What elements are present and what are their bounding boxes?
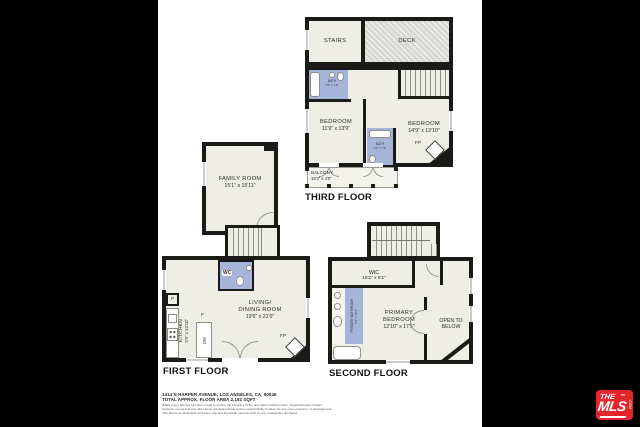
balcony-post xyxy=(371,184,375,188)
wall xyxy=(393,128,396,167)
window xyxy=(306,298,310,318)
bath2-label: BATH 4'0" x 7'5" xyxy=(368,143,392,150)
stairs xyxy=(372,226,424,256)
fireplace-label: FP xyxy=(415,141,422,146)
mls-logo-mls: MLS xyxy=(597,399,627,413)
balcony-post xyxy=(327,184,331,188)
window xyxy=(186,358,208,362)
family-room-label: FAMILY ROOM 15'1" x 15'11" xyxy=(205,176,275,189)
stair-rail xyxy=(372,240,430,241)
window xyxy=(305,30,309,50)
living-dining-label: LIVING/ DINING ROOM 19'6" x 21'0" xyxy=(224,300,296,320)
third-floor-plan: STAIRS DECK BATH 7'5" x 4'5" BEDROOM 11'… xyxy=(305,17,455,203)
family-room-plan: FAMILY ROOM 15'1" x 15'11" xyxy=(202,142,284,264)
open-to-below-label: OPEN TO BELOW xyxy=(430,318,472,330)
window xyxy=(469,278,473,294)
dishwasher-label: DW xyxy=(196,326,212,354)
floor-plan-screenshot: STAIRS DECK BATH 7'5" x 4'5" BEDROOM 11'… xyxy=(0,0,640,427)
door-opening xyxy=(424,310,427,334)
mls-logo-com: .COM xyxy=(628,399,632,409)
footer-text-block: 1414 N HARPER AVENUE, LOS ANGELES, CA, 9… xyxy=(162,392,357,416)
window xyxy=(469,306,473,322)
toilet-icon xyxy=(369,155,376,163)
stairs-to-first-floor xyxy=(229,228,260,257)
bathtub-icon xyxy=(369,130,391,138)
third-floor-title: THIRD FLOOR xyxy=(305,192,372,203)
window xyxy=(162,270,166,290)
balcony-post xyxy=(305,184,309,188)
mls-logo: THE MLS TM .COM xyxy=(596,390,633,420)
interior-stairs xyxy=(401,70,449,96)
kitchen-sink-icon xyxy=(168,314,177,323)
mls-logo-underline xyxy=(600,416,627,418)
deck-label: DECK xyxy=(375,38,439,45)
balcony-post xyxy=(394,184,398,188)
wic-label: WIC 16'2" x 5'1" xyxy=(342,270,406,282)
primary-bathroom: PRIMARY BATHROOM 5'3" x 10'3" xyxy=(345,288,363,344)
window xyxy=(305,109,309,133)
balcony-post xyxy=(305,167,309,171)
stair-rail xyxy=(261,228,262,257)
first-floor-title: FIRST FLOOR xyxy=(163,366,229,377)
balcony-label: BALCONY 18'2" x 4'0" xyxy=(311,170,351,181)
pantry-label-2: P xyxy=(201,312,204,317)
sink-icon xyxy=(329,72,335,78)
stove-icon xyxy=(167,328,178,341)
pantry-label: P xyxy=(166,296,179,301)
wall xyxy=(363,99,366,167)
first-floor-plan: WC P KITCHEN 9'9" x 13'10" P DW LIVING/ … xyxy=(162,256,314,380)
bathtub-icon xyxy=(333,346,361,360)
wall xyxy=(309,99,351,102)
second-floor-plan: WIC 16'2" x 5'1" PRIMARY BATHROOM 5'3" x… xyxy=(328,222,478,382)
toilet-icon xyxy=(236,276,244,286)
mls-logo-tm: TM xyxy=(621,394,625,397)
sink-icon xyxy=(334,292,341,299)
balcony-post xyxy=(349,184,353,188)
disclaimer: This plan is for illustrative purposes o… xyxy=(162,412,357,416)
kitchen-label: KITCHEN 9'9" x 13'10" xyxy=(179,308,189,354)
bath-label: BATH 7'5" x 4'5" xyxy=(320,80,344,87)
mini-stairs xyxy=(427,244,440,256)
second-floor-title: SECOND FLOOR xyxy=(329,368,408,379)
wall xyxy=(440,261,443,285)
wall xyxy=(264,142,278,151)
bathtub-icon xyxy=(310,72,320,97)
bedroom2-label: BEDROOM 14'9" x 13'10" xyxy=(397,121,451,134)
balcony-post xyxy=(394,167,398,171)
wall xyxy=(412,261,415,288)
window xyxy=(386,360,410,364)
window xyxy=(449,111,453,131)
french-door-opening xyxy=(222,358,258,362)
stairs-label: STAIRS xyxy=(307,38,363,45)
wall xyxy=(398,96,453,99)
toilet-icon xyxy=(333,316,342,327)
wc-label: WC xyxy=(222,270,232,276)
sink-icon xyxy=(246,265,252,271)
bedroom1-label: BEDROOM 11'9" x 13'9" xyxy=(307,119,365,132)
fireplace-label: FP xyxy=(280,334,287,339)
sink-icon xyxy=(334,303,341,310)
